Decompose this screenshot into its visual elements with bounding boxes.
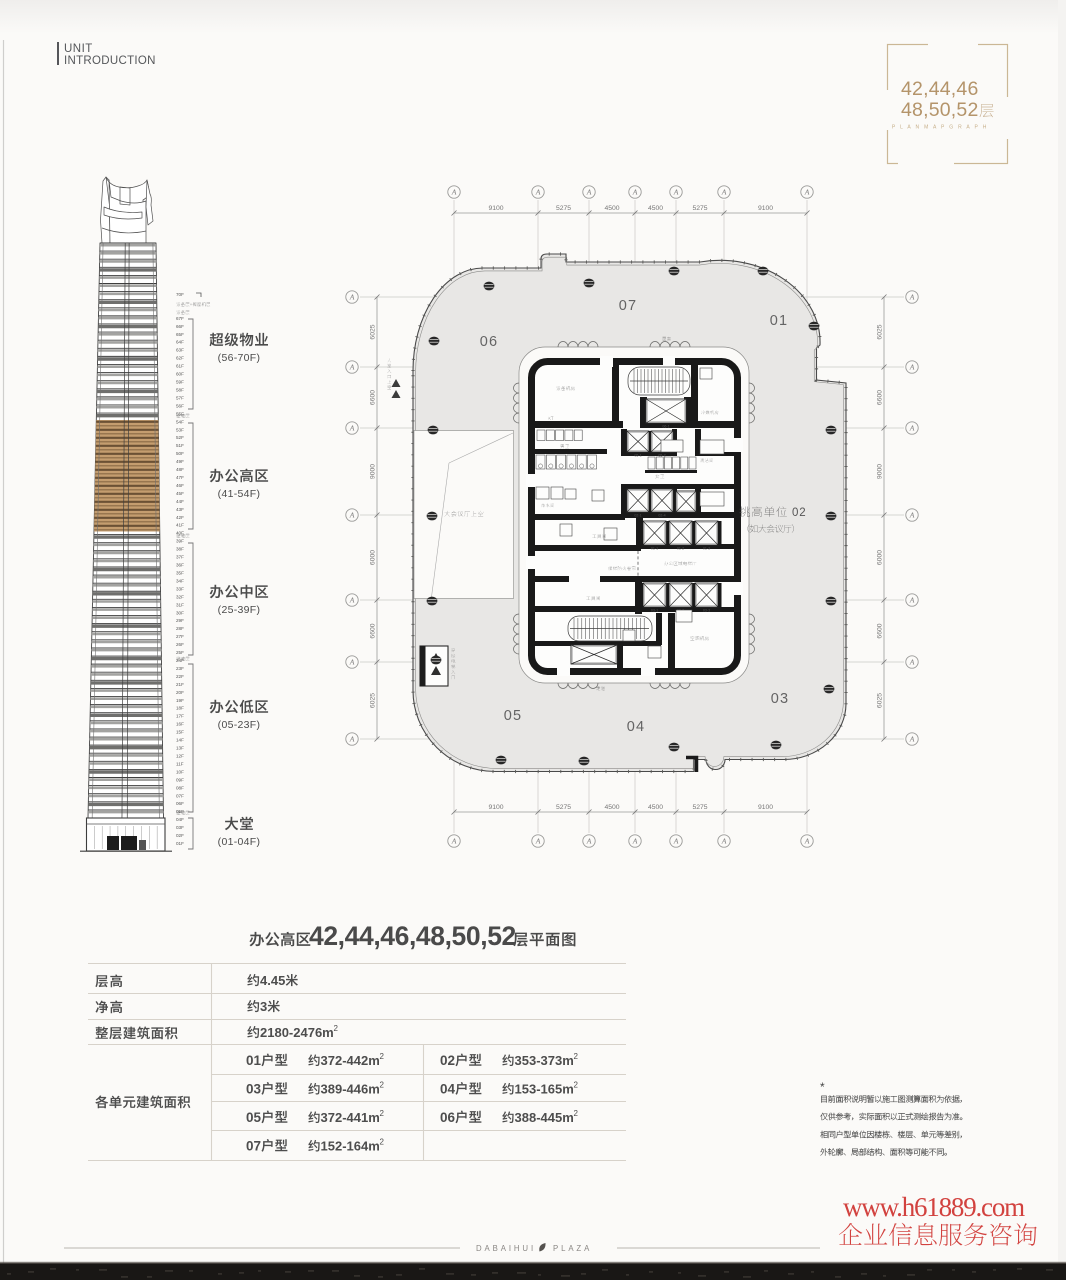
svg-text:2: 2 [574,1081,579,1090]
svg-text:03-1: 03-1 [651,609,658,613]
svg-text:2: 2 [380,1081,385,1090]
svg-text:56F: 56F [176,403,184,408]
svg-text:9000: 9000 [877,464,884,479]
svg-text:152-164: 152-164 [321,1139,369,1154]
svg-text:6600: 6600 [877,623,884,638]
svg-text:A: A [632,837,638,846]
svg-text:2: 2 [380,1138,385,1147]
svg-text:07: 07 [619,298,638,314]
svg-text:A: A [349,293,355,302]
svg-text:(25-39F): (25-39F) [218,604,261,616]
svg-text:31F: 31F [176,602,184,607]
svg-text:PLAZA: PLAZA [553,1244,592,1253]
svg-text:03: 03 [771,691,790,707]
svg-text:A: A [349,363,355,372]
svg-text:A: A [909,363,915,372]
svg-text:9100: 9100 [488,205,503,212]
svg-text:6600: 6600 [370,623,377,638]
svg-text:A: A [535,188,541,197]
svg-text:9000: 9000 [370,464,377,479]
svg-text:27F: 27F [176,634,184,639]
svg-text:INTRODUCTION: INTRODUCTION [64,55,156,67]
svg-text:A: A [673,188,679,197]
svg-text:3: 3 [260,999,267,1014]
svg-text:(01-04F): (01-04F) [218,836,261,848]
svg-text:DABAIHUI: DABAIHUI [476,1244,536,1253]
svg-text:A: A [586,188,592,197]
svg-text:m: m [368,1053,380,1068]
svg-text:5275: 5275 [556,205,571,212]
svg-text:10F: 10F [176,769,184,774]
svg-text:33F: 33F [176,586,184,591]
svg-text:06: 06 [480,334,499,350]
svg-text:UNIT: UNIT [64,43,93,55]
svg-text:A: A [586,837,592,846]
svg-text:01-2: 01-2 [677,547,684,551]
svg-text:45F: 45F [176,491,184,496]
svg-text:A: A [804,188,810,197]
svg-text:A: A [804,837,810,846]
svg-text:53F: 53F [176,427,184,432]
svg-text:A: A [349,658,355,667]
svg-text:m: m [368,1082,380,1097]
svg-text:44F: 44F [176,499,184,504]
svg-text:04F: 04F [176,817,184,822]
svg-text:20F: 20F [176,690,184,695]
svg-text:25F: 25F [176,650,184,655]
svg-text:5275: 5275 [556,804,571,811]
svg-text:A: A [451,188,457,197]
svg-text:153-165: 153-165 [515,1082,563,1097]
svg-text:05: 05 [246,1110,262,1125]
svg-text:30F: 30F [176,610,184,615]
svg-text:52F: 52F [176,435,184,440]
svg-text:70F: 70F [176,292,184,297]
svg-text:50F: 50F [176,451,184,456]
svg-text:4500: 4500 [604,205,619,212]
svg-text:42F: 42F [176,515,184,520]
svg-text:47F: 47F [176,475,184,480]
svg-text:57F: 57F [176,395,184,400]
svg-text:05: 05 [504,708,523,724]
svg-text:28F: 28F [176,626,184,631]
svg-text:03-3: 03-3 [703,609,710,613]
svg-text:66F: 66F [176,324,184,329]
svg-text:26F: 26F [176,642,184,647]
svg-text:A: A [349,511,355,520]
svg-text:6025: 6025 [370,693,377,708]
svg-text:34F: 34F [176,578,184,583]
svg-text:372-442: 372-442 [321,1053,369,1068]
svg-text:04: 04 [440,1082,456,1097]
svg-text:58F: 58F [176,388,184,393]
svg-text:*: * [820,1080,825,1094]
svg-text:36F: 36F [176,563,184,568]
svg-text:2: 2 [574,1109,579,1118]
svg-text:5275: 5275 [692,804,707,811]
svg-text:32F: 32F [176,594,184,599]
svg-text:62F: 62F [176,356,184,361]
svg-text:06F: 06F [176,801,184,806]
svg-text:07F: 07F [176,793,184,798]
svg-text:01: 01 [770,313,789,329]
svg-text:(56-70F): (56-70F) [218,352,261,364]
svg-text:09F: 09F [176,777,184,782]
svg-text:51F: 51F [176,443,184,448]
svg-text:P L A N M A P G R A P H: P L A N M A P G R A P H [892,125,988,131]
svg-text:2: 2 [380,1052,385,1061]
svg-text:67F: 67F [176,316,184,321]
svg-text:61F: 61F [176,364,184,369]
svg-text:6000: 6000 [370,550,377,565]
svg-text:64F: 64F [176,340,184,345]
svg-text:18F: 18F [176,706,184,711]
svg-text:2: 2 [574,1052,579,1061]
svg-text:m: m [368,1139,380,1154]
svg-text:04: 04 [627,719,646,735]
svg-text:A: A [909,293,915,302]
svg-text:08F: 08F [176,785,184,790]
svg-text:48,50,52: 48,50,52 [901,99,979,121]
svg-text:389-446: 389-446 [321,1082,369,1097]
svg-text:29F: 29F [176,618,184,623]
svg-text:A: A [349,735,355,744]
svg-text:02: 02 [792,507,806,519]
svg-text:35F: 35F [176,571,184,576]
svg-text:37F: 37F [176,555,184,560]
svg-text:13F: 13F [176,746,184,751]
svg-text:01-1: 01-1 [651,547,658,551]
svg-text:02F: 02F [176,833,184,838]
svg-text:A: A [909,658,915,667]
svg-text:02-1: 02-1 [634,514,641,518]
svg-text:2180-2476m: 2180-2476m [260,1025,334,1040]
svg-text:07: 07 [246,1139,261,1154]
svg-text:A: A [535,837,541,846]
svg-text:03F: 03F [176,825,184,830]
svg-text:A: A [909,596,915,605]
svg-text:6025: 6025 [370,324,377,339]
svg-text:(41-54F): (41-54F) [218,488,261,500]
svg-text:11F: 11F [176,761,184,766]
svg-text:43F: 43F [176,507,184,512]
svg-text:www.h61889.com: www.h61889.com [843,1192,1025,1222]
svg-text:9100: 9100 [758,804,773,811]
svg-text:22F: 22F [176,674,184,679]
svg-text:6025: 6025 [877,693,884,708]
svg-text:(05-23F): (05-23F) [218,719,261,731]
svg-text:46F: 46F [176,483,184,488]
svg-text:A: A [721,837,727,846]
svg-text:01-3: 01-3 [703,547,710,551]
svg-text:388-445: 388-445 [515,1110,563,1125]
svg-text:m: m [562,1110,574,1125]
svg-text:60F: 60F [176,372,184,377]
svg-text:m: m [368,1110,380,1125]
svg-text:2: 2 [333,1024,338,1033]
svg-text:54F: 54F [176,419,184,424]
svg-text:5275: 5275 [692,205,707,212]
svg-text:353-373: 353-373 [515,1053,563,1068]
svg-text:A: A [673,837,679,846]
svg-text:A: A [632,188,638,197]
svg-text:12F: 12F [176,754,184,759]
svg-text:48F: 48F [176,467,184,472]
svg-text:05-1: 05-1 [634,454,641,458]
svg-text:2: 2 [380,1109,385,1118]
svg-text:21F: 21F [176,682,184,687]
svg-text:6025: 6025 [877,324,884,339]
svg-text:06: 06 [440,1110,456,1125]
svg-text:m: m [562,1082,574,1097]
svg-text:15F: 15F [176,730,184,735]
svg-text:4500: 4500 [648,205,663,212]
svg-text:A: A [909,511,915,520]
svg-text:63F: 63F [176,348,184,353]
svg-text:16F: 16F [176,722,184,727]
svg-text:59F: 59F [176,380,184,385]
svg-text:23F: 23F [176,666,184,671]
svg-text:A: A [451,837,457,846]
svg-text:4.45: 4.45 [260,973,285,988]
svg-text:01F: 01F [176,841,184,846]
svg-text:9100: 9100 [488,804,503,811]
svg-text:9100: 9100 [758,205,773,212]
svg-text:39F: 39F [176,539,184,544]
svg-text:03: 03 [246,1082,262,1097]
svg-text:6600: 6600 [877,390,884,405]
svg-text:02: 02 [440,1053,455,1068]
svg-text:372-441: 372-441 [321,1110,369,1125]
svg-text:A: A [721,188,727,197]
svg-text:06-1: 06-1 [662,425,669,429]
svg-text:A: A [349,596,355,605]
svg-text:17F: 17F [176,714,184,719]
svg-text:49F: 49F [176,459,184,464]
svg-text:02-4: 02-4 [658,514,665,518]
svg-text:42,44,46: 42,44,46 [901,78,979,100]
svg-text:01: 01 [246,1053,262,1068]
svg-text:6600: 6600 [370,390,377,405]
svg-text:14F: 14F [176,738,184,743]
svg-text:41F: 41F [176,523,184,528]
svg-text:19F: 19F [176,698,184,703]
svg-text:A: A [349,424,355,433]
svg-text:42,44,46,48,50,52: 42,44,46,48,50,52 [309,921,516,951]
svg-text:6000: 6000 [877,550,884,565]
svg-text:A: A [909,424,915,433]
svg-text:38F: 38F [176,547,184,552]
svg-text:A: A [909,735,915,744]
svg-text:4500: 4500 [648,804,663,811]
svg-text:65F: 65F [176,332,184,337]
svg-text:4500: 4500 [604,804,619,811]
svg-text:m: m [562,1053,574,1068]
